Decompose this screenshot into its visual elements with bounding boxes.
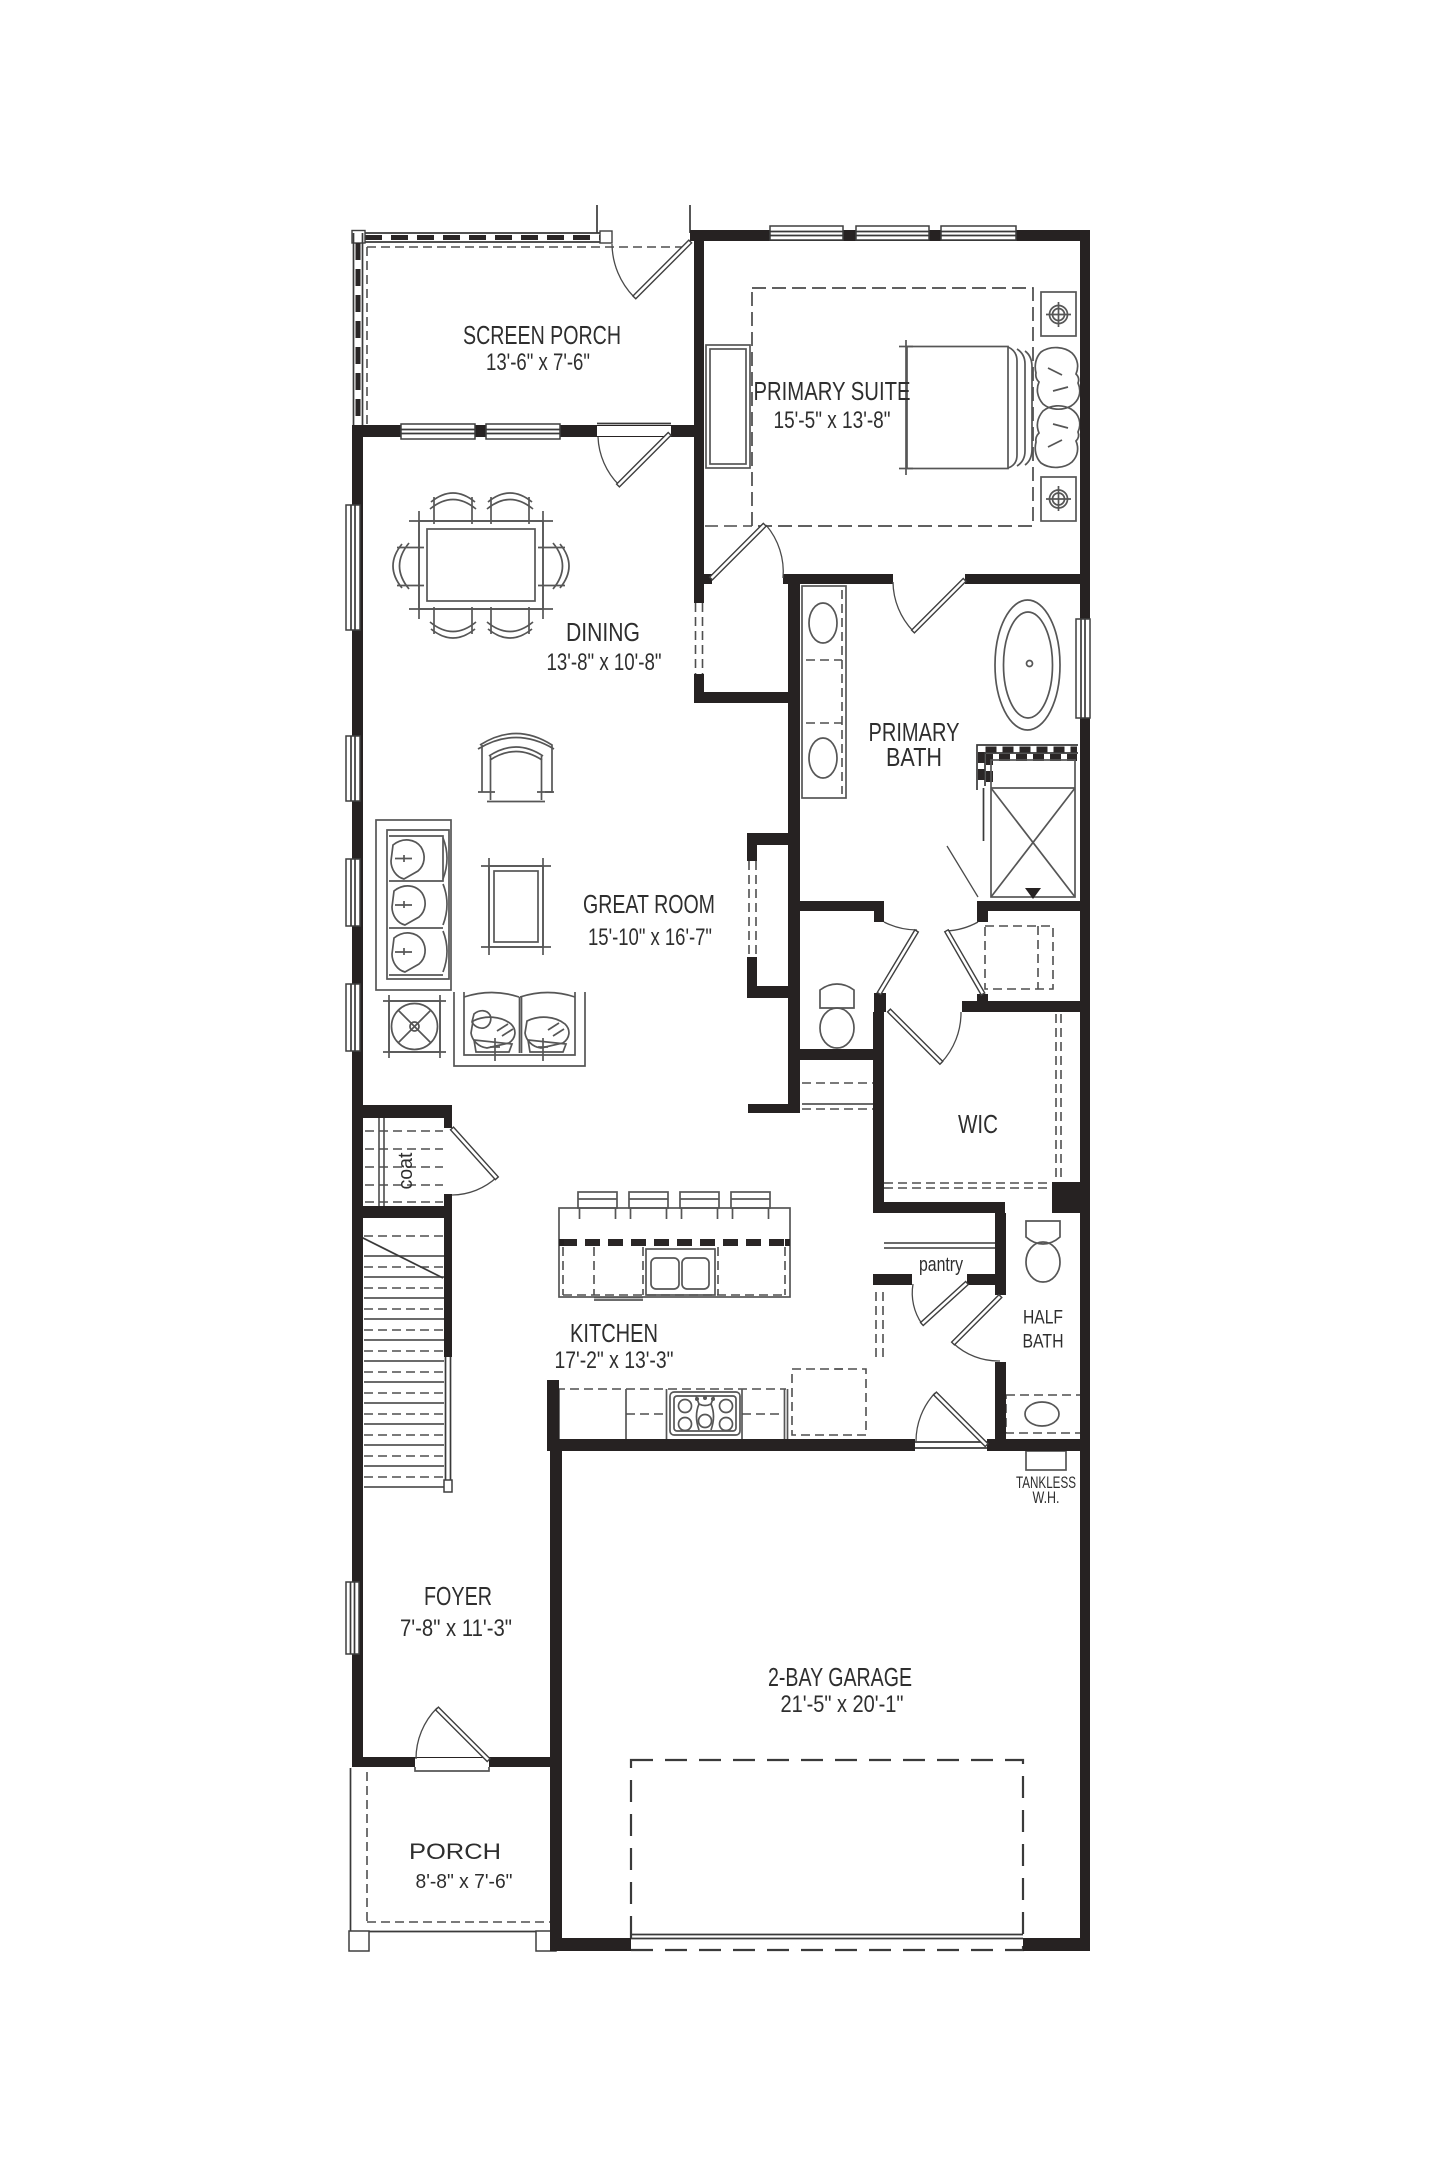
svg-text:7'-8" x 11'-3": 7'-8" x 11'-3" <box>400 1615 512 1642</box>
svg-text:2-BAY GARAGE: 2-BAY GARAGE <box>768 1662 912 1692</box>
svg-text:coat: coat <box>395 1152 417 1189</box>
svg-text:SCREEN PORCH: SCREEN PORCH <box>463 320 621 350</box>
svg-text:13'-6" x 7'-6": 13'-6" x 7'-6" <box>486 349 590 376</box>
svg-text:8'-8" x 7'-6": 8'-8" x 7'-6" <box>416 1871 513 1893</box>
svg-text:GREAT ROOM: GREAT ROOM <box>583 889 715 919</box>
svg-text:PRIMARY SUITE: PRIMARY SUITE <box>754 376 911 406</box>
svg-text:FOYER: FOYER <box>424 1581 492 1611</box>
svg-text:HALF: HALF <box>1023 1307 1063 1329</box>
svg-text:BATH: BATH <box>1023 1331 1064 1353</box>
svg-text:17'-2" x 13'-3": 17'-2" x 13'-3" <box>555 1347 674 1374</box>
svg-text:21'-5" x 20'-1": 21'-5" x 20'-1" <box>781 1691 904 1718</box>
svg-text:PORCH: PORCH <box>409 1839 501 1864</box>
svg-text:W.H.: W.H. <box>1033 1488 1060 1507</box>
svg-text:13'-8" x 10'-8": 13'-8" x 10'-8" <box>547 649 662 676</box>
svg-text:WIC: WIC <box>958 1109 998 1139</box>
svg-text:pantry: pantry <box>919 1254 963 1276</box>
svg-text:DINING: DINING <box>566 617 640 647</box>
svg-text:15'-10" x 16'-7": 15'-10" x 16'-7" <box>588 924 712 951</box>
svg-text:KITCHEN: KITCHEN <box>570 1318 658 1348</box>
svg-text:BATH: BATH <box>886 742 942 772</box>
svg-text:15'-5" x 13'-8": 15'-5" x 13'-8" <box>774 407 891 434</box>
